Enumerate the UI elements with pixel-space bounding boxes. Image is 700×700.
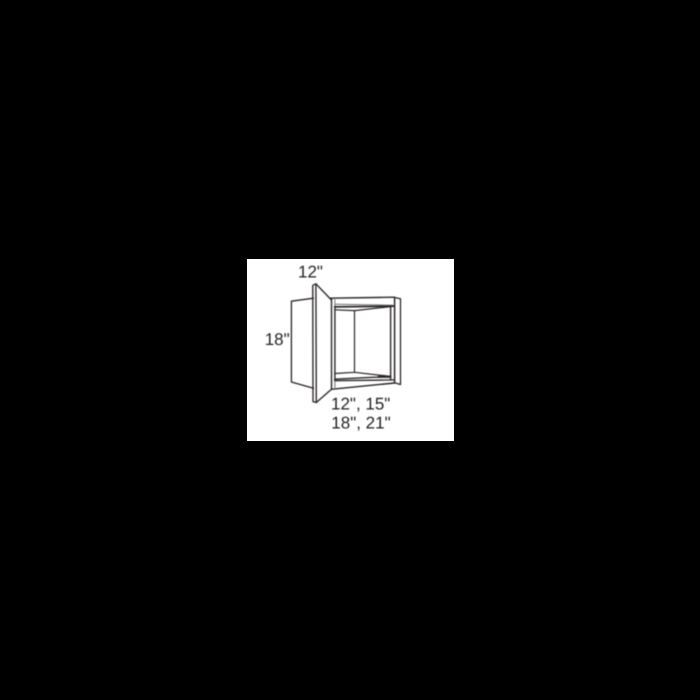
svg-text:18", 21": 18", 21"	[331, 414, 390, 433]
svg-text:12", 15": 12", 15"	[331, 394, 390, 413]
svg-text:18": 18"	[265, 330, 290, 349]
svg-text:12": 12"	[298, 262, 323, 281]
